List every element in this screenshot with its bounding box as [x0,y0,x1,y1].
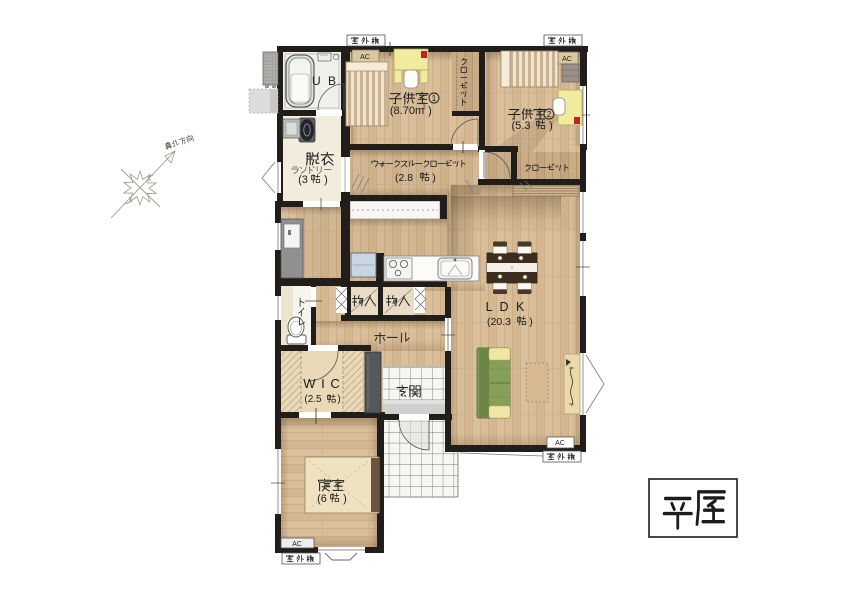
svg-text:): ) [549,120,553,132]
svg-text:(3: (3 [298,174,308,186]
svg-text:AC: AC [562,56,572,63]
svg-text:2: 2 [547,110,552,119]
svg-text:): ) [337,394,340,405]
svg-text:(5.3: (5.3 [512,120,531,132]
svg-text:(2.8: (2.8 [395,172,413,184]
svg-text:U B: U B [312,74,338,88]
svg-text:L D K: L D K [486,300,527,314]
svg-text:): ) [432,172,436,184]
svg-text:(8.70m: (8.70m [390,105,424,117]
svg-text:): ) [343,493,347,505]
svg-text:): ) [324,174,328,186]
svg-text:AC: AC [360,54,370,61]
svg-text:W I C: W I C [303,376,341,391]
svg-text:(6: (6 [317,493,327,505]
svg-text:AC: AC [292,541,302,548]
svg-text:(20.3: (20.3 [487,316,511,328]
svg-text:AC: AC [555,440,565,447]
svg-text:1: 1 [432,94,437,103]
svg-text:): ) [529,316,533,328]
svg-text:(2.5: (2.5 [304,394,322,405]
svg-text:): ) [428,105,432,117]
